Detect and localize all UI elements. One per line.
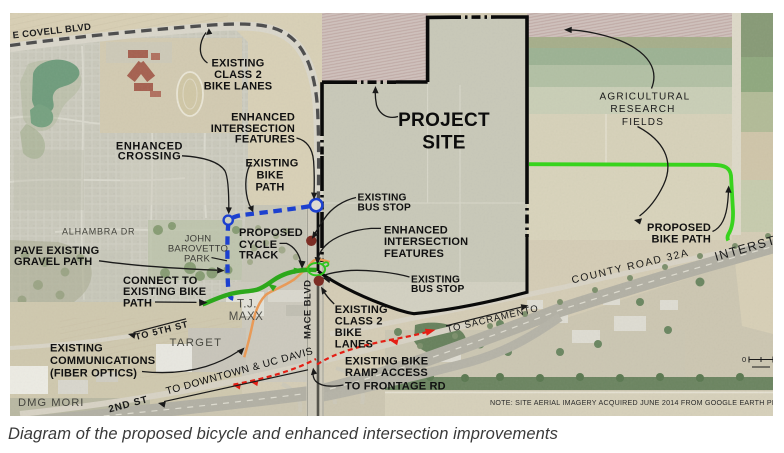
svg-text:PROPOSED: PROPOSED: [239, 227, 303, 239]
svg-text:FEATURES: FEATURES: [235, 134, 295, 146]
svg-text:SITE: SITE: [422, 133, 465, 154]
svg-text:TRACK: TRACK: [239, 250, 279, 262]
svg-text:PROJECT: PROJECT: [398, 110, 490, 131]
svg-text:RESEARCH: RESEARCH: [610, 104, 675, 115]
svg-text:PARK: PARK: [184, 253, 210, 264]
svg-text:EXISTING: EXISTING: [335, 304, 388, 316]
svg-text:0: 0: [742, 355, 746, 364]
svg-text:RAMP ACCESS: RAMP ACCESS: [345, 367, 428, 379]
svg-text:DMG MORI: DMG MORI: [18, 397, 84, 409]
svg-text:T.J.: T.J.: [237, 299, 257, 311]
svg-text:PROPOSED: PROPOSED: [647, 222, 711, 234]
svg-text:TARGET: TARGET: [170, 337, 223, 349]
svg-text:AGRICULTURAL: AGRICULTURAL: [600, 92, 691, 103]
svg-text:CROSSING: CROSSING: [118, 151, 181, 163]
svg-text:LANES: LANES: [335, 339, 373, 351]
svg-text:BUS STOP: BUS STOP: [358, 202, 412, 213]
svg-text:ENHANCED: ENHANCED: [231, 112, 295, 124]
svg-text:FEATURES: FEATURES: [384, 248, 444, 260]
svg-text:BUS STOP: BUS STOP: [411, 284, 465, 295]
svg-text:CONNECT TO: CONNECT TO: [123, 275, 198, 287]
svg-text:EXISTING BIKE: EXISTING BIKE: [123, 286, 206, 298]
svg-text:CLASS 2: CLASS 2: [335, 315, 383, 327]
svg-text:(FIBER OPTICS): (FIBER OPTICS): [50, 368, 137, 380]
svg-text:BIKE LANES: BIKE LANES: [204, 81, 273, 93]
svg-text:ALHAMBRA DR: ALHAMBRA DR: [62, 227, 135, 237]
svg-text:BIKE: BIKE: [256, 170, 283, 182]
svg-text:PATH: PATH: [255, 182, 284, 194]
svg-text:BIKE PATH: BIKE PATH: [652, 234, 711, 246]
svg-text:EXISTING: EXISTING: [212, 58, 265, 70]
svg-text:ENHANCED: ENHANCED: [384, 224, 448, 236]
svg-text:FIELDS: FIELDS: [622, 117, 664, 128]
svg-text:PATH: PATH: [123, 298, 152, 310]
svg-text:BIKE: BIKE: [335, 327, 362, 339]
svg-text:EXISTING: EXISTING: [50, 343, 103, 355]
svg-text:INTERSECTION: INTERSECTION: [384, 236, 468, 248]
svg-text:TO FRONTAGE RD: TO FRONTAGE RD: [345, 381, 446, 393]
svg-text:GRAVEL PATH: GRAVEL PATH: [14, 256, 92, 268]
svg-text:MAXX: MAXX: [229, 311, 264, 323]
svg-text:MACE BLVD: MACE BLVD: [303, 280, 314, 339]
svg-text:CLASS 2: CLASS 2: [214, 69, 262, 81]
svg-text:NOTE: SITE AERIAL IMAGERY ACQU: NOTE: SITE AERIAL IMAGERY ACQUIRED JUNE …: [490, 399, 783, 407]
svg-text:EXISTING: EXISTING: [246, 158, 299, 170]
svg-text:EXISTING BIKE: EXISTING BIKE: [345, 356, 428, 368]
svg-text:COMMUNICATIONS: COMMUNICATIONS: [50, 355, 155, 367]
